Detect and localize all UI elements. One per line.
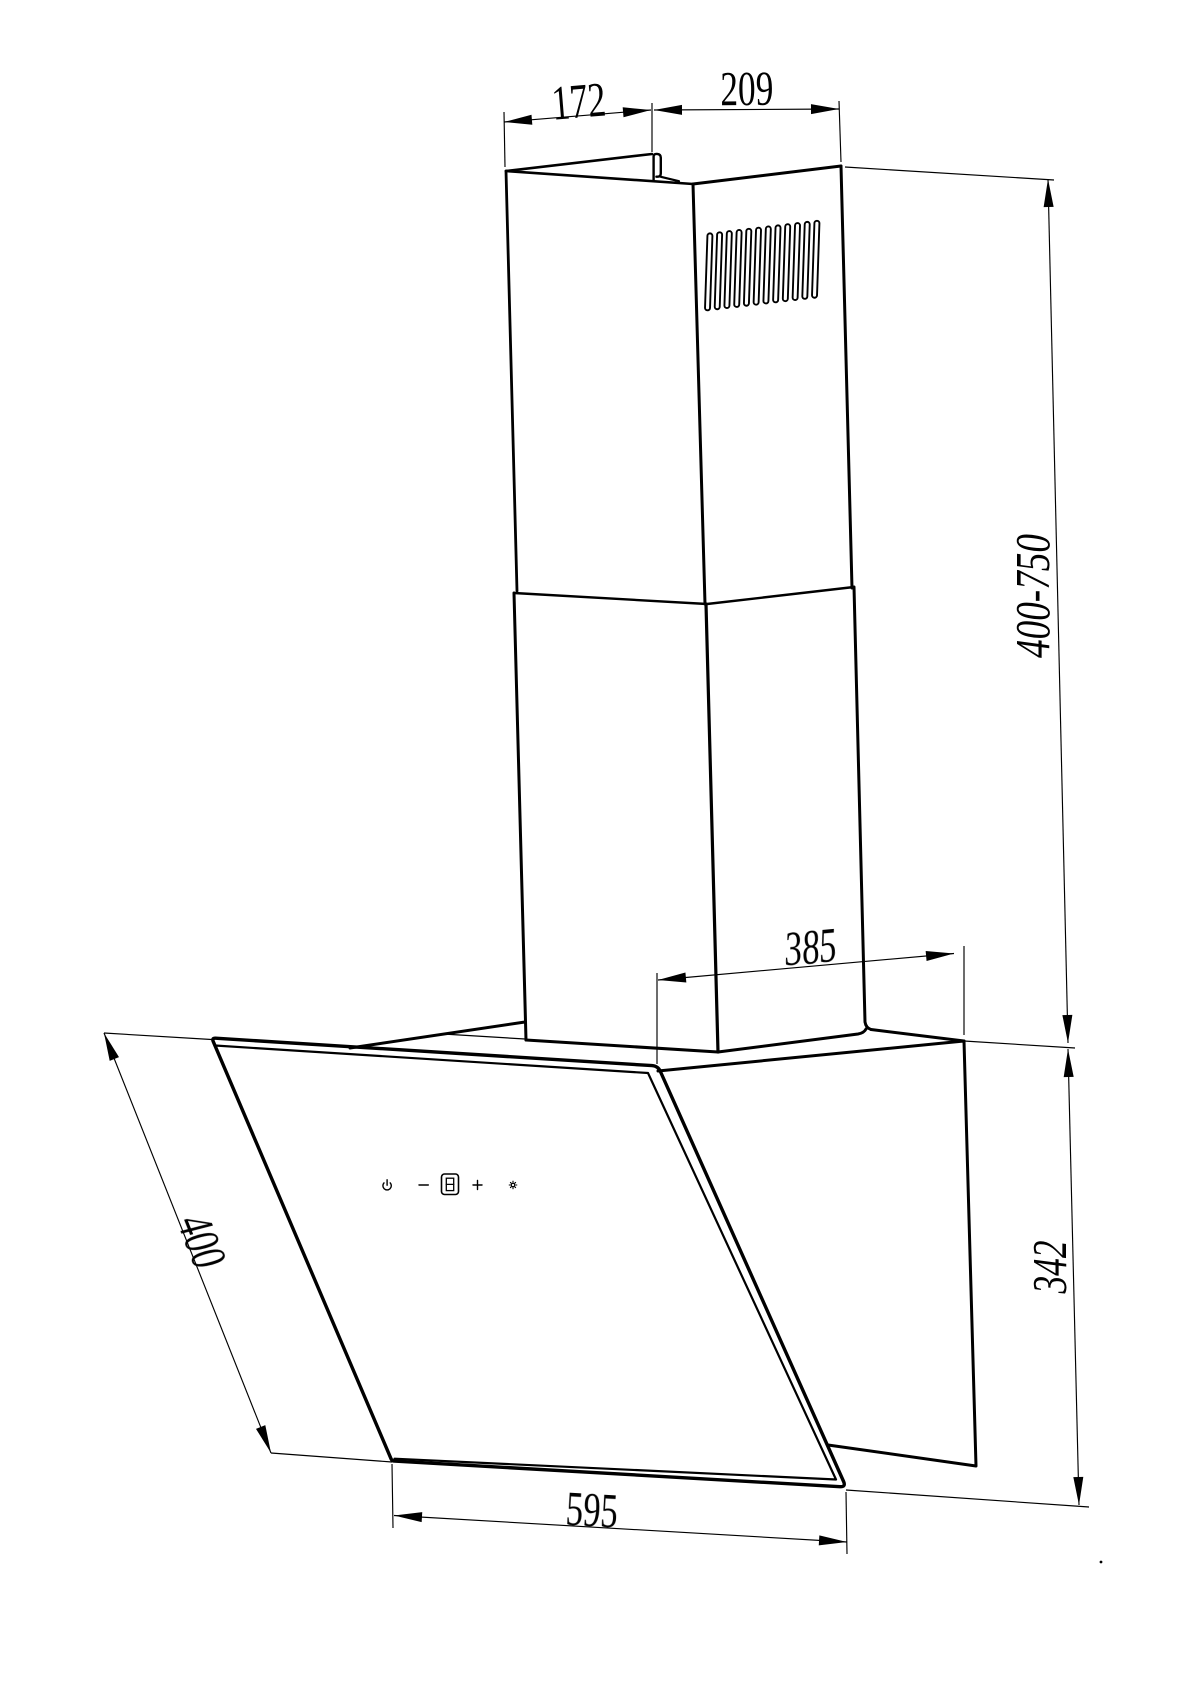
svg-text:209: 209: [720, 61, 774, 117]
svg-text:342: 342: [1022, 1241, 1077, 1295]
svg-text:172: 172: [549, 71, 607, 130]
svg-text:385: 385: [781, 917, 838, 977]
svg-text:400-750: 400-750: [1005, 534, 1060, 658]
svg-text:595: 595: [564, 1481, 619, 1539]
